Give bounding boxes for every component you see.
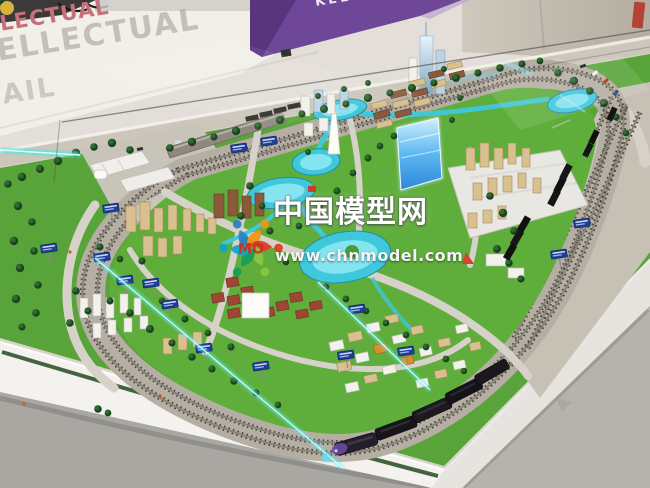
watermark: MO 中国模型网 www.chnmodel.com <box>213 196 453 300</box>
photo-of-scale-model: LECTUAL ELLECTUAL AIL KEEP MO 中国模型网 www <box>0 0 650 488</box>
watermark-site-url: www.chnmodel.com <box>275 246 463 265</box>
watermark-site-name: 中国模型网 <box>273 196 428 231</box>
logo-mo-text: MO <box>238 242 264 258</box>
